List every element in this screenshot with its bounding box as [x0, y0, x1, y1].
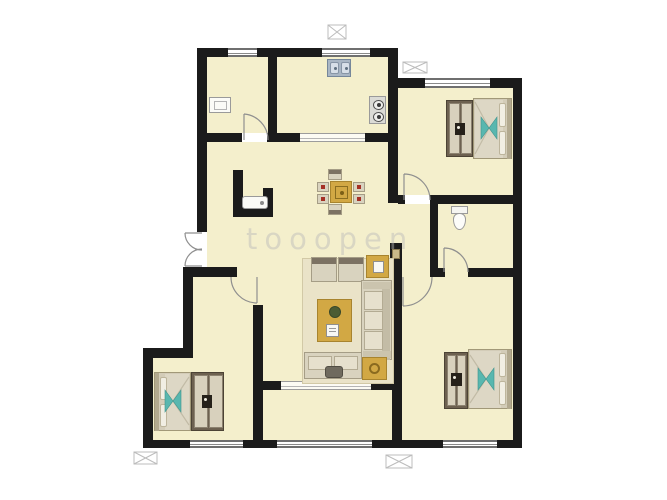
door-bathroom — [444, 248, 468, 272]
ac-marker-bottom-center — [386, 455, 412, 468]
ac-marker-right-top — [403, 62, 427, 73]
bed-bow-bottom-right — [478, 368, 494, 390]
floor-plan-canvas: tooopen — [0, 0, 667, 500]
door-bedroom-top-right — [404, 174, 430, 200]
bed-bow-top-right — [481, 117, 497, 139]
ac-marker-bottom-left — [134, 452, 157, 464]
door-bedroom-bottom-left — [231, 277, 257, 303]
entry-door-leaf-bottom — [185, 249, 202, 266]
door-arcs — [185, 114, 468, 306]
bed-bow-bottom-left — [165, 390, 181, 412]
watermark-text: tooopen — [246, 222, 414, 256]
bed-accents — [165, 102, 497, 425]
ac-marker-top — [328, 25, 346, 39]
door-utility — [244, 114, 268, 140]
door-bedroom-bottom-right — [403, 277, 432, 306]
entry-door-leaf-top — [185, 233, 202, 250]
